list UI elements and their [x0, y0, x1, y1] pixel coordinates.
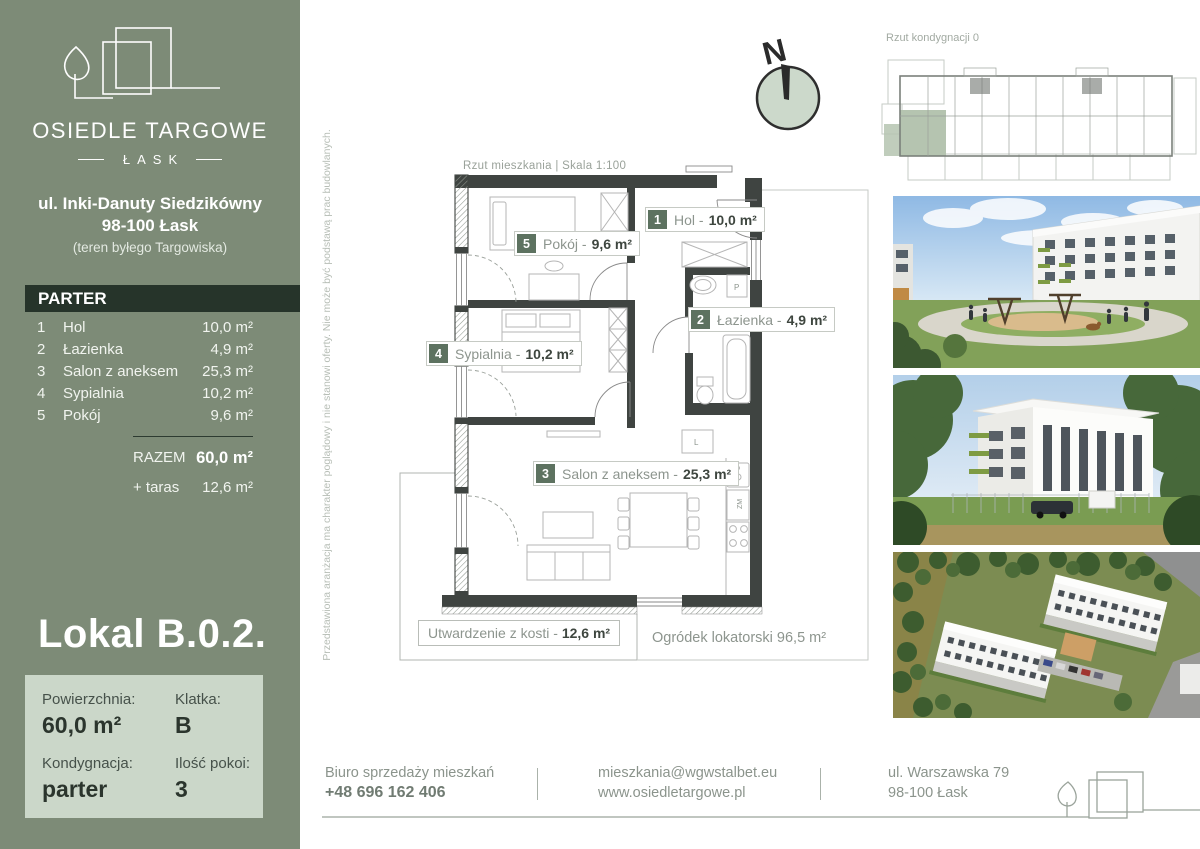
sidebar: OSIEDLE TARGOWE ŁASK ul. Inki-Danuty Sie… [0, 0, 300, 849]
plan-label-pokoj: 5 Pokój - 9,6 m² [514, 231, 640, 256]
room-row: 3 Salon z aneksem 25,3 m² [37, 361, 253, 383]
room-row: 5 Pokój 9,6 m² [37, 405, 253, 427]
overview-caption: Rzut kondygnacji 0 [886, 32, 979, 44]
dishwasher-label: ZM [737, 499, 744, 509]
photo-aerial-render [893, 552, 1200, 718]
plan-disclaimer: Przedstawiona aranżacja ma charakter pog… [321, 125, 333, 665]
floor-overview-plan [878, 48, 1200, 188]
room-list: 1 Hol 10,0 m² 2 Łazienka 4,9 m² 3 Salon … [37, 317, 253, 427]
compass-north-icon: N [745, 25, 835, 140]
dash-left [78, 159, 104, 160]
brand-name: OSIEDLE TARGOWE [0, 118, 300, 144]
total-divider [133, 436, 253, 437]
washer-label: P [734, 283, 739, 292]
terrace-row: + taras 12,6 m² [133, 477, 253, 499]
address-line2: 98-100 Łask [0, 216, 300, 236]
garden-label: Ogródek lokatorski 96,5 m² [652, 630, 826, 646]
room-number-badge: 2 [691, 310, 710, 329]
fridge-label: L [694, 438, 699, 447]
room-number-badge: 4 [429, 344, 448, 363]
footer-logo-icon [322, 750, 1200, 830]
unit-title: Lokal B.0.2. [38, 612, 266, 657]
unit-info-box: Powierzchnia: 60,0 m² Klatka: B Kondygna… [25, 675, 263, 818]
room-row: 1 Hol 10,0 m² [37, 317, 253, 339]
room-row: 2 Łazienka 4,9 m² [37, 339, 253, 361]
info-rooms-count: Ilość pokoi: 3 [175, 755, 250, 803]
address-note: (teren byłego Targowiska) [0, 240, 300, 255]
photo-building-render [893, 375, 1200, 545]
info-staircase: Klatka: B [175, 691, 221, 739]
room-number-badge: 5 [517, 234, 536, 253]
room-number-badge: 1 [648, 210, 667, 229]
brand-subtitle: ŁASK [0, 152, 300, 167]
plan-label-sypialnia: 4 Sypialnia - 10,2 m² [426, 341, 582, 366]
paved-area-label: Utwardzenie z kosti - 12,6 m² [418, 620, 620, 646]
room-number-badge: 3 [536, 464, 555, 483]
plan-label-salon: 3 Salon z aneksem - 25,3 m² [533, 461, 739, 486]
svg-text:N: N [759, 31, 790, 72]
plan-label-hol: 1 Hol - 10,0 m² [645, 207, 765, 232]
floor-header: PARTER [25, 285, 300, 312]
room-row: 4 Sypialnia 10,2 m² [37, 383, 253, 405]
floor-plan: P L ZM [398, 148, 878, 673]
brochure-page: OSIEDLE TARGOWE ŁASK ul. Inki-Danuty Sie… [0, 0, 1200, 849]
brand-logo-icon [58, 12, 238, 112]
total-row: RAZEM 60,0 m² [133, 447, 253, 469]
info-area: Powierzchnia: 60,0 m² [42, 691, 135, 739]
plan-label-lazienka: 2 Łazienka - 4,9 m² [688, 307, 835, 332]
photo-courtyard-render [893, 196, 1200, 368]
dash-right [196, 159, 222, 160]
address-line1: ul. Inki-Danuty Siedzikówny [0, 194, 300, 214]
info-floor: Kondygnacja: parter [42, 755, 133, 803]
